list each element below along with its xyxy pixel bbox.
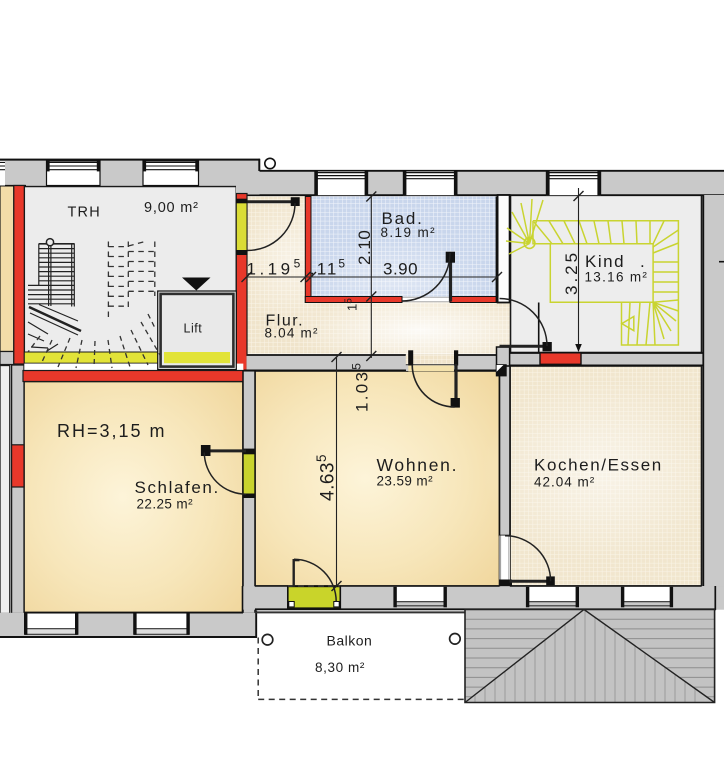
svg-text:Wohnen.: Wohnen. bbox=[377, 455, 459, 475]
svg-text:8,30 m²: 8,30 m² bbox=[315, 660, 365, 675]
svg-text:Kochen/Essen: Kochen/Essen bbox=[534, 456, 663, 475]
svg-text:Schlafen.: Schlafen. bbox=[135, 478, 220, 497]
svg-text:2.10: 2.10 bbox=[355, 230, 374, 266]
svg-text:TRH: TRH bbox=[68, 205, 101, 221]
svg-text:13.16 m²: 13.16 m² bbox=[585, 270, 649, 285]
svg-text:22.25 m²: 22.25 m² bbox=[137, 497, 194, 512]
svg-text:.: . bbox=[640, 252, 645, 271]
svg-text:3.90: 3.90 bbox=[383, 260, 418, 279]
svg-text:23.59 m²: 23.59 m² bbox=[377, 474, 434, 489]
svg-text:8.19 m²: 8.19 m² bbox=[381, 225, 437, 240]
svg-text:42.04 m²: 42.04 m² bbox=[534, 475, 595, 490]
svg-text:Lift: Lift bbox=[184, 322, 203, 336]
svg-text:9,00 m²: 9,00 m² bbox=[144, 200, 199, 216]
svg-text:3.25: 3.25 bbox=[562, 250, 581, 295]
svg-text:Balkon: Balkon bbox=[327, 633, 373, 649]
svg-text:RH=3,15 m: RH=3,15 m bbox=[57, 421, 167, 441]
svg-text:Kind: Kind bbox=[585, 252, 625, 271]
svg-text:8.04 m²: 8.04 m² bbox=[265, 326, 319, 341]
